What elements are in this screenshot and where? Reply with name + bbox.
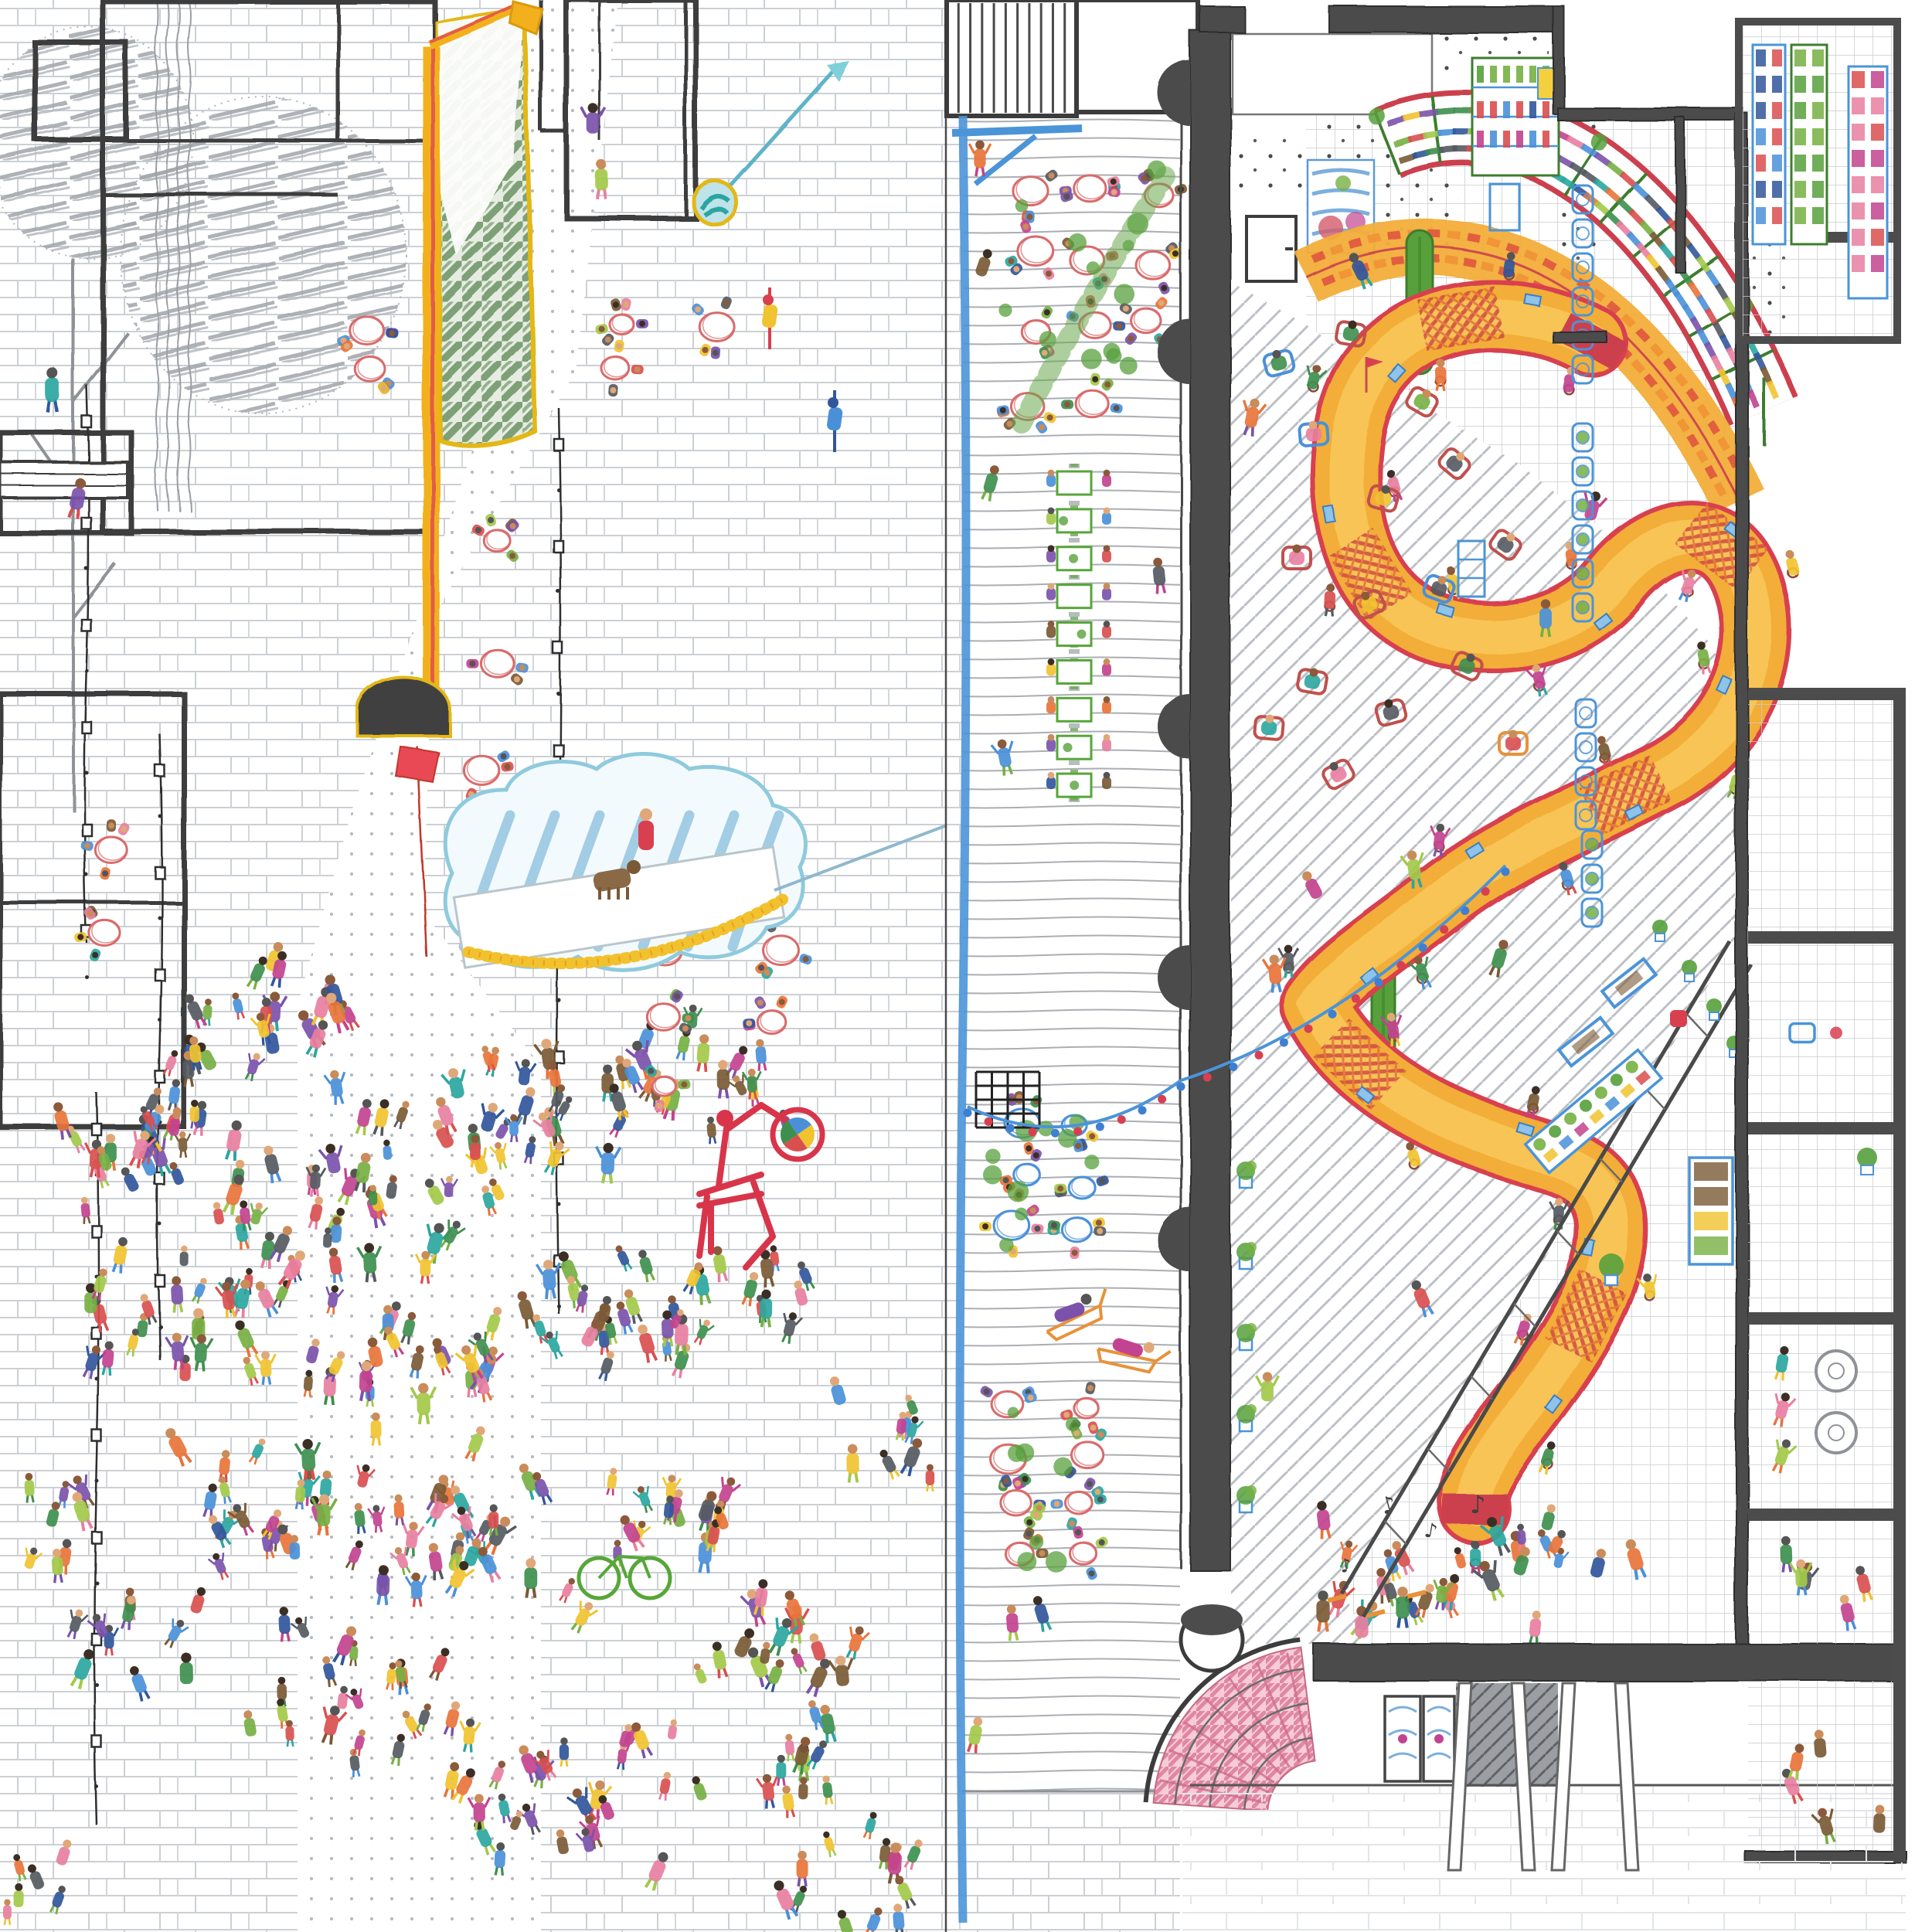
- lamp-fixture: [554, 541, 563, 553]
- rect-mark: [560, 1744, 569, 1760]
- circle-mark: [1104, 382, 1111, 388]
- circle-mark: [713, 349, 719, 355]
- circle-mark: [1000, 407, 1006, 413]
- wall-segment: [1329, 6, 1558, 32]
- lamp-fixture: [82, 620, 91, 631]
- line-mark: [420, 1597, 421, 1607]
- line-mark: [287, 1632, 289, 1641]
- shelf-content-dab: [1852, 124, 1865, 141]
- circle-mark: [716, 1110, 733, 1127]
- festoon-bulb: [1158, 1095, 1166, 1104]
- circle-mark: [674, 993, 680, 999]
- circle-mark: [623, 301, 629, 308]
- corner-shelf-room: [1739, 22, 1897, 340]
- circle-mark: [121, 826, 127, 832]
- circle-mark: [1059, 516, 1068, 526]
- rect-mark: [1046, 588, 1056, 600]
- line-mark: [470, 1743, 472, 1753]
- circle-mark: [471, 1134, 480, 1143]
- line-mark: [192, 1121, 193, 1128]
- shelf-book-dab: [1543, 131, 1549, 148]
- plant-scribble: [999, 1238, 1014, 1253]
- line-mark: [1702, 665, 1705, 675]
- rect-mark: [1102, 739, 1111, 751]
- shelf-content-dab: [1756, 76, 1766, 93]
- circle-mark: [1097, 1496, 1104, 1502]
- line-mark: [60, 1573, 62, 1583]
- circle-mark: [639, 321, 645, 327]
- rect-mark: [706, 1123, 716, 1138]
- circle-mark: [1123, 305, 1129, 311]
- rect-mark: [1316, 1600, 1329, 1623]
- wing-room: [1748, 944, 1893, 1122]
- wing-outer-wall: [1893, 688, 1906, 1862]
- circle-mark: [1054, 1501, 1060, 1507]
- red-chair: [1670, 1010, 1687, 1027]
- rect-mark: [317, 1504, 331, 1526]
- circle-mark: [510, 523, 516, 529]
- shelf-book-dab: [1490, 101, 1497, 118]
- circle-mark: [1046, 270, 1052, 277]
- rect-mark: [383, 1145, 392, 1160]
- line-mark: [281, 1720, 283, 1729]
- counter-guest: [1784, 549, 1800, 576]
- line-mark: [1284, 968, 1286, 977]
- rect-mark: [1102, 663, 1111, 675]
- person-figure: [179, 1246, 188, 1267]
- line-mark: [975, 1743, 978, 1753]
- circle-mark: [469, 661, 475, 667]
- circle-mark: [557, 1202, 561, 1206]
- line-mark: [420, 1413, 421, 1424]
- line-mark: [786, 1809, 788, 1818]
- line-mark: [495, 1527, 497, 1536]
- rect-mark: [1655, 934, 1665, 941]
- ellipse-mark: [95, 837, 127, 863]
- line-mark: [885, 1861, 887, 1869]
- line-mark: [355, 1659, 356, 1666]
- circle-mark: [627, 860, 641, 874]
- line-mark: [502, 1866, 503, 1876]
- circle-mark: [1047, 414, 1053, 420]
- circle-mark: [1509, 730, 1518, 739]
- rect-mark: [784, 1740, 794, 1755]
- festoon-bulb: [1419, 944, 1427, 952]
- circle-mark: [613, 301, 619, 308]
- circle-mark: [505, 764, 511, 770]
- circle-mark: [1048, 470, 1055, 477]
- line-mark: [26, 1495, 28, 1502]
- wing-divider-wall: [1748, 688, 1893, 700]
- shelf-plant-dab: [1516, 66, 1523, 83]
- circle-mark: [648, 1068, 654, 1074]
- ceiling-dot-band: [1233, 130, 1308, 192]
- plant-scribble: [1066, 1417, 1080, 1431]
- circle-mark: [85, 975, 89, 979]
- wall-segment: [1553, 332, 1607, 343]
- line-mark: [758, 1063, 760, 1071]
- counter-tray: [1523, 293, 1540, 304]
- rect-mark: [1046, 777, 1056, 789]
- shelf-book-dab: [1503, 131, 1510, 148]
- circle-mark: [158, 1223, 162, 1226]
- line-mark: [468, 1388, 469, 1397]
- flag-base: [357, 677, 450, 736]
- rect-mark: [1046, 474, 1056, 487]
- line-mark: [97, 1168, 100, 1178]
- circle-mark: [1075, 1529, 1081, 1536]
- rect-mark: [102, 1349, 114, 1368]
- festoon-bulb: [1229, 1063, 1237, 1071]
- line-mark: [1326, 1621, 1328, 1631]
- line-mark: [368, 1390, 370, 1401]
- line-mark: [768, 1317, 770, 1327]
- circle-mark: [1104, 470, 1111, 477]
- circle-mark: [560, 1737, 568, 1745]
- line-mark: [604, 1091, 605, 1101]
- line-mark: [726, 1088, 727, 1098]
- circle-mark: [1028, 1395, 1034, 1401]
- rect-mark: [509, 1121, 519, 1136]
- line-mark: [1548, 627, 1549, 637]
- rect-mark: [947, 0, 1077, 116]
- shelf-plant-dab: [1503, 66, 1510, 83]
- line-mark: [684, 1344, 686, 1355]
- circle-mark: [1026, 1531, 1032, 1537]
- rect-mark: [278, 1614, 291, 1634]
- line-mark: [379, 1437, 380, 1446]
- rect-mark: [1102, 777, 1111, 789]
- festoon-bulb: [1502, 868, 1510, 876]
- produce-display: [1689, 1158, 1733, 1264]
- rect-mark: [202, 1005, 213, 1020]
- shelf-book-dab: [1516, 101, 1523, 118]
- rect-mark: [46, 378, 60, 402]
- rect-mark: [1102, 588, 1111, 600]
- plant-scribble: [1008, 1406, 1019, 1418]
- circle-mark: [1087, 1385, 1094, 1391]
- festoon-bulb: [1328, 1010, 1337, 1019]
- circle-mark: [1033, 1512, 1039, 1518]
- line-mark: [561, 1759, 563, 1767]
- festoon-bulb: [1352, 995, 1360, 1003]
- festoon-bulb: [985, 1117, 993, 1126]
- circle-mark: [1048, 658, 1055, 665]
- rect-mark: [363, 1252, 377, 1274]
- circle-mark: [779, 999, 785, 1005]
- lamp-fixture: [92, 1430, 101, 1441]
- rect-mark: [587, 113, 600, 134]
- ellipse-mark: [757, 1011, 786, 1034]
- line-mark: [825, 1797, 828, 1804]
- deck-end-paving: [962, 1793, 1180, 1932]
- rect-mark: [289, 1543, 300, 1560]
- circle-mark: [1318, 1590, 1328, 1600]
- circle-mark: [519, 665, 526, 671]
- plant-scribble: [1008, 1181, 1029, 1202]
- circle-mark: [1104, 772, 1111, 779]
- shelf-content-dab: [1794, 155, 1806, 172]
- line-mark: [413, 1597, 415, 1607]
- wing-room: [1748, 1681, 1893, 1851]
- rect-mark: [285, 1726, 294, 1741]
- circle-mark: [1116, 323, 1122, 329]
- line-mark: [1781, 1371, 1784, 1380]
- shelf-content-dab: [1772, 181, 1782, 198]
- circle-mark: [1069, 1521, 1075, 1527]
- rect-mark: [1396, 1597, 1409, 1619]
- circle-mark: [1048, 621, 1055, 628]
- circle-mark: [723, 300, 730, 306]
- rect-mark: [301, 1448, 316, 1471]
- line-mark: [292, 1740, 294, 1747]
- wing-room: [1748, 700, 1893, 931]
- ellipse-mark: [699, 313, 734, 342]
- shelf-book-dab: [1490, 131, 1497, 148]
- line-mark: [495, 1866, 497, 1876]
- shelf-content-dab: [1756, 155, 1766, 172]
- wing-divider-wall: [1748, 1312, 1893, 1325]
- line-mark: [54, 1573, 56, 1583]
- shelf-plant-dab: [1529, 66, 1536, 83]
- circle-mark: [1577, 499, 1589, 512]
- ellipse-mark: [1072, 1442, 1104, 1468]
- line-mark: [478, 1158, 479, 1167]
- circle-mark: [1577, 431, 1589, 444]
- circle-mark: [1022, 1476, 1029, 1482]
- rect-mark: [1102, 701, 1111, 713]
- circle-mark: [158, 815, 162, 818]
- line-mark: [1443, 383, 1444, 391]
- circle-mark: [1104, 734, 1111, 741]
- rect-mark: [410, 1580, 423, 1600]
- circle-mark: [746, 1020, 752, 1026]
- circle-mark: [777, 1755, 785, 1763]
- circle-mark: [758, 964, 764, 971]
- circle-mark: [92, 952, 98, 958]
- green-table: [1057, 736, 1091, 759]
- circle-mark: [1026, 1145, 1032, 1151]
- line-mark: [32, 1495, 33, 1502]
- circle-mark: [634, 366, 641, 372]
- shelf-content-dab: [1871, 229, 1884, 246]
- circle-mark: [681, 1081, 687, 1087]
- top-wall-shelf: [1472, 58, 1559, 175]
- line-mark: [326, 1524, 328, 1535]
- line-mark: [665, 1355, 666, 1362]
- circle-mark: [1111, 189, 1117, 196]
- rect-mark: [760, 1298, 772, 1319]
- shelf-content-dab: [1852, 71, 1865, 88]
- circle-mark: [1104, 545, 1111, 552]
- circle-mark: [1104, 583, 1111, 590]
- wall-segment: [1736, 114, 1748, 1681]
- tier-seat-dab: [1391, 256, 1404, 265]
- line-mark: [64, 1565, 67, 1574]
- shelf-book-dab: [1503, 101, 1510, 118]
- rect-mark: [1268, 963, 1282, 984]
- shelf-plant-dab: [1490, 66, 1497, 83]
- line-mark: [709, 1137, 711, 1145]
- line-mark: [309, 1389, 311, 1397]
- festoon-bulb: [1304, 1025, 1313, 1033]
- lamp-fixture: [554, 439, 563, 451]
- line-mark: [762, 1317, 764, 1327]
- line-mark: [597, 189, 598, 199]
- circle-mark: [1161, 285, 1167, 291]
- line-mark: [375, 1526, 376, 1533]
- line-mark: [475, 1821, 477, 1831]
- wall-segment: [1190, 31, 1230, 1570]
- line-mark: [402, 1517, 403, 1526]
- circle-mark: [1335, 175, 1351, 191]
- lamp-fixture: [82, 824, 91, 835]
- rect-mark: [755, 1046, 767, 1064]
- circle-mark: [1063, 743, 1073, 752]
- facade-window: [1385, 1696, 1420, 1781]
- circle-mark: [1069, 554, 1078, 563]
- line-mark: [175, 1360, 177, 1370]
- line-mark: [754, 1091, 756, 1100]
- circle-mark: [1026, 1519, 1032, 1526]
- line-mark: [333, 1274, 336, 1283]
- rect-mark: [179, 1662, 193, 1685]
- circle-mark: [102, 870, 108, 876]
- shelf-content-dab: [1852, 150, 1865, 167]
- rect-mark: [1006, 1613, 1019, 1633]
- lamp-fixture: [82, 722, 91, 733]
- circle-mark: [501, 753, 507, 760]
- rect-mark: [369, 1191, 377, 1205]
- line-mark: [529, 1156, 532, 1164]
- circle-mark: [685, 1015, 691, 1021]
- line-mark: [287, 1740, 289, 1747]
- shelf-content-dab: [1852, 202, 1865, 219]
- rect-mark: [543, 1268, 556, 1290]
- line-mark: [791, 1633, 794, 1644]
- shelf-content-dab: [1772, 155, 1782, 172]
- festoon-bulb: [964, 1109, 972, 1117]
- festoon-bulb: [1051, 1129, 1060, 1138]
- shelf-content-dab: [1812, 102, 1824, 119]
- circle-mark: [1097, 1228, 1103, 1234]
- line-mark: [546, 1068, 549, 1079]
- wall-shelf-strip: [1791, 45, 1827, 244]
- ellipse-mark: [601, 357, 629, 379]
- rect-mark: [488, 1512, 498, 1529]
- circle-mark: [1104, 621, 1111, 628]
- shelf-book-dab: [1529, 101, 1536, 118]
- person-figure: [13, 1883, 24, 1907]
- rect-mark: [1861, 1165, 1873, 1175]
- ellipse-mark: [350, 317, 384, 345]
- rect-mark: [277, 1684, 287, 1700]
- wing-room: [1748, 1521, 1893, 1644]
- circle-mark: [1008, 258, 1014, 264]
- line-mark: [9, 1918, 10, 1925]
- line-mark: [759, 1315, 761, 1323]
- line-mark: [427, 1275, 429, 1284]
- music-note-glyph: ♪: [1470, 1490, 1485, 1519]
- line-mark: [601, 1346, 603, 1355]
- shelf-content-dab: [1794, 181, 1806, 198]
- circle-mark: [108, 822, 114, 828]
- plant-scribble: [1104, 343, 1121, 360]
- line-mark: [474, 1387, 475, 1396]
- circle-mark: [1111, 179, 1117, 185]
- ellipse-mark: [1065, 1492, 1092, 1513]
- circle-mark: [1158, 300, 1165, 306]
- line-mark: [318, 1524, 321, 1535]
- circle-mark: [1114, 405, 1120, 411]
- line-mark: [421, 1275, 423, 1284]
- ellipse-mark: [484, 530, 510, 552]
- circle-mark: [1577, 533, 1589, 546]
- line-mark: [1471, 1564, 1473, 1573]
- line-mark: [1318, 1621, 1320, 1631]
- line-mark: [311, 1188, 313, 1196]
- line-mark: [672, 1109, 675, 1121]
- shelf-plant: [1590, 134, 1607, 151]
- rect-mark: [600, 1152, 614, 1175]
- line-mark: [511, 1134, 512, 1142]
- line-mark: [705, 1062, 707, 1072]
- wall-segment: [1314, 1644, 1903, 1681]
- circle-mark: [927, 1464, 934, 1471]
- rect-mark: [310, 1172, 321, 1189]
- line-mark: [669, 1517, 672, 1525]
- circle-mark: [1089, 1133, 1095, 1139]
- shelf-content-dab: [1756, 49, 1766, 66]
- circle-mark: [95, 1377, 99, 1381]
- line-mark: [226, 1308, 229, 1318]
- float-rider: [638, 808, 654, 850]
- column-cap: [1181, 1604, 1243, 1635]
- circle-mark: [1072, 1250, 1078, 1256]
- line-mark: [83, 1216, 85, 1224]
- circle-mark: [193, 1308, 203, 1318]
- person-figure: [179, 1652, 193, 1684]
- circle-mark: [702, 347, 709, 353]
- wall-segment: [1200, 6, 1244, 32]
- line-mark: [676, 1344, 679, 1355]
- circle-mark: [1039, 1550, 1045, 1556]
- line-mark: [325, 1395, 327, 1405]
- line-mark: [266, 1551, 269, 1560]
- rect-mark: [798, 1784, 808, 1800]
- circle-mark: [158, 1325, 162, 1328]
- tier-seat-dab: [1445, 256, 1458, 265]
- circle-mark: [828, 397, 838, 408]
- line-mark: [889, 1872, 892, 1883]
- line-mark: [751, 1099, 753, 1107]
- circle-mark: [490, 1504, 498, 1512]
- circle-mark: [599, 326, 605, 332]
- rect-mark: [1102, 512, 1111, 525]
- line-mark: [849, 1472, 850, 1482]
- rect-mark: [1046, 512, 1056, 525]
- line-mark: [352, 1770, 355, 1777]
- circle-mark: [695, 306, 701, 312]
- circle-mark: [1246, 1161, 1257, 1172]
- shelf-content-dab: [1756, 102, 1766, 119]
- line-mark: [1406, 1617, 1407, 1628]
- lamp-fixture: [155, 1275, 165, 1287]
- plant-scribble: [1084, 1155, 1099, 1169]
- line-mark: [192, 1061, 195, 1070]
- ellipse-mark: [1074, 175, 1106, 202]
- ellipse-mark: [764, 936, 799, 965]
